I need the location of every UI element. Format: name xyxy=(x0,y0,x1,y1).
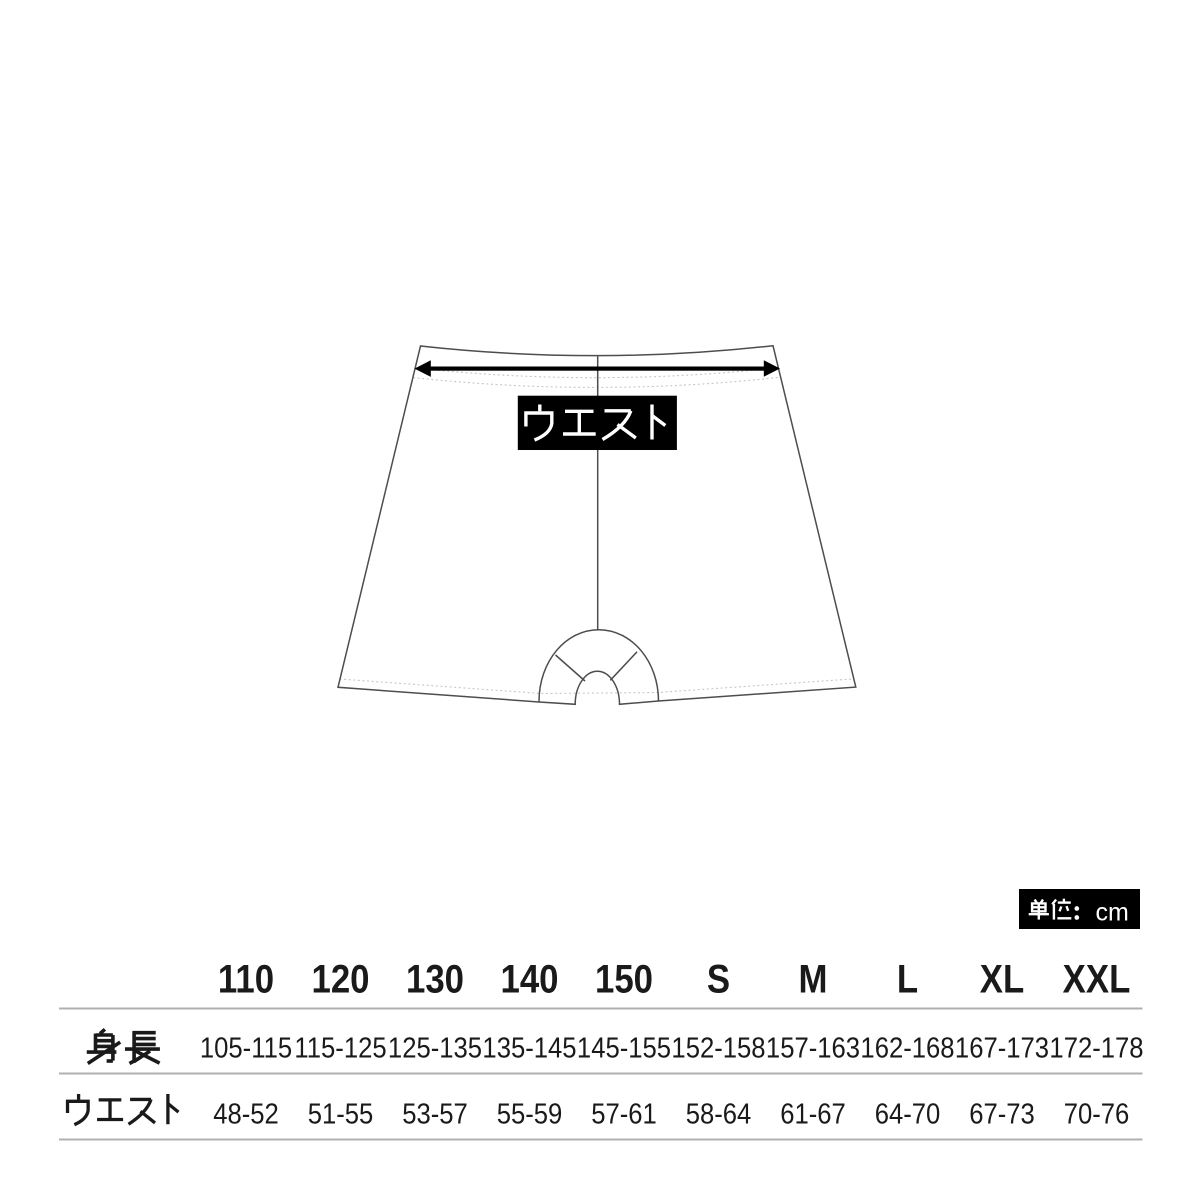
svg-text:57-61: 57-61 xyxy=(591,1097,657,1130)
svg-text:L: L xyxy=(897,956,918,1001)
svg-text:M: M xyxy=(799,956,828,1001)
svg-text:70-76: 70-76 xyxy=(1064,1097,1130,1130)
svg-text:cm: cm xyxy=(1096,899,1129,927)
svg-text:152-158: 152-158 xyxy=(671,1031,765,1064)
svg-text:53-57: 53-57 xyxy=(402,1097,468,1130)
svg-text:XL: XL xyxy=(980,956,1024,1001)
svg-text:140: 140 xyxy=(500,956,558,1001)
svg-text:167-173: 167-173 xyxy=(955,1031,1049,1064)
svg-text:135-145: 135-145 xyxy=(482,1031,576,1064)
svg-text:162-168: 162-168 xyxy=(860,1031,954,1064)
svg-text:64-70: 64-70 xyxy=(875,1097,941,1130)
svg-text:55-59: 55-59 xyxy=(497,1097,563,1130)
svg-text:51-55: 51-55 xyxy=(308,1097,374,1130)
svg-text:150: 150 xyxy=(595,956,653,1001)
svg-text:48-52: 48-52 xyxy=(213,1097,279,1130)
svg-text:S: S xyxy=(707,956,730,1001)
svg-text:XXL: XXL xyxy=(1063,956,1131,1001)
svg-text:105-115: 105-115 xyxy=(200,1031,292,1064)
svg-text:172-178: 172-178 xyxy=(1049,1031,1143,1064)
svg-text:115-125: 115-125 xyxy=(294,1031,386,1064)
svg-text:125-135: 125-135 xyxy=(388,1031,482,1064)
svg-text:110: 110 xyxy=(218,956,274,1001)
svg-text:67-73: 67-73 xyxy=(969,1097,1035,1130)
svg-text:130: 130 xyxy=(406,956,464,1001)
svg-text:157-163: 157-163 xyxy=(766,1031,860,1064)
svg-text:58-64: 58-64 xyxy=(686,1097,752,1130)
svg-text:120: 120 xyxy=(311,956,369,1001)
svg-text:145-155: 145-155 xyxy=(577,1031,671,1064)
svg-text:61-67: 61-67 xyxy=(780,1097,846,1130)
